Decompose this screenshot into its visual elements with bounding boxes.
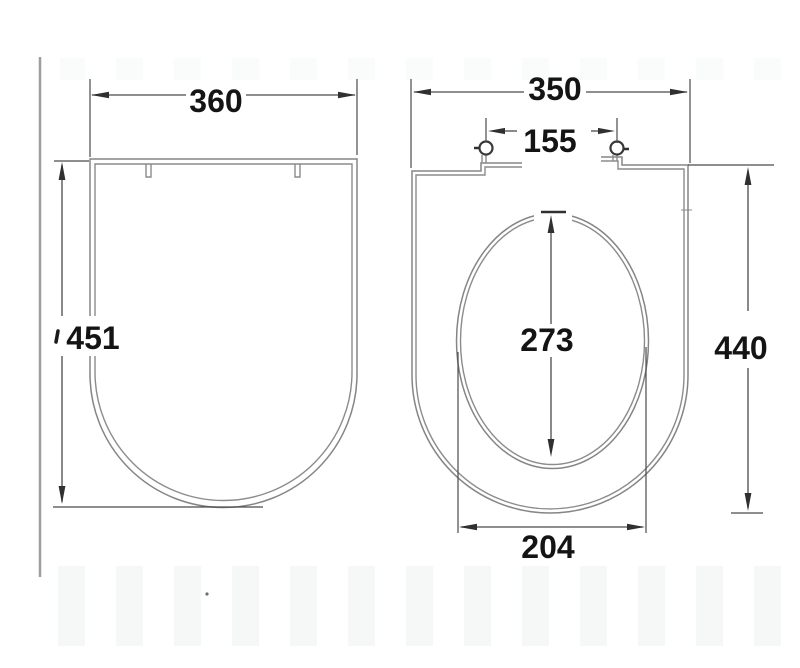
dim-label-opening-height: 273 xyxy=(520,322,573,358)
technical-drawing: 360 451 350 155 273 xyxy=(0,0,800,668)
hinge-pin-left xyxy=(480,142,493,155)
dim-label-seat-height: 440 xyxy=(714,330,767,366)
speck-artifact xyxy=(205,592,208,595)
scan-band-top xyxy=(60,58,800,80)
dim-label-hinge-spacing: 155 xyxy=(523,123,576,159)
dim-label-seat-width: 350 xyxy=(528,71,581,107)
scan-band-bottom xyxy=(52,566,800,646)
dim-label-lid-width: 360 xyxy=(189,83,242,119)
dim-label-opening-width: 204 xyxy=(521,529,575,565)
stray-mark-artifact xyxy=(56,331,58,342)
drawing-canvas: 360 451 350 155 273 xyxy=(0,0,800,668)
hinge-pin-right xyxy=(611,142,624,155)
dim-label-lid-height: 451 xyxy=(66,320,119,356)
